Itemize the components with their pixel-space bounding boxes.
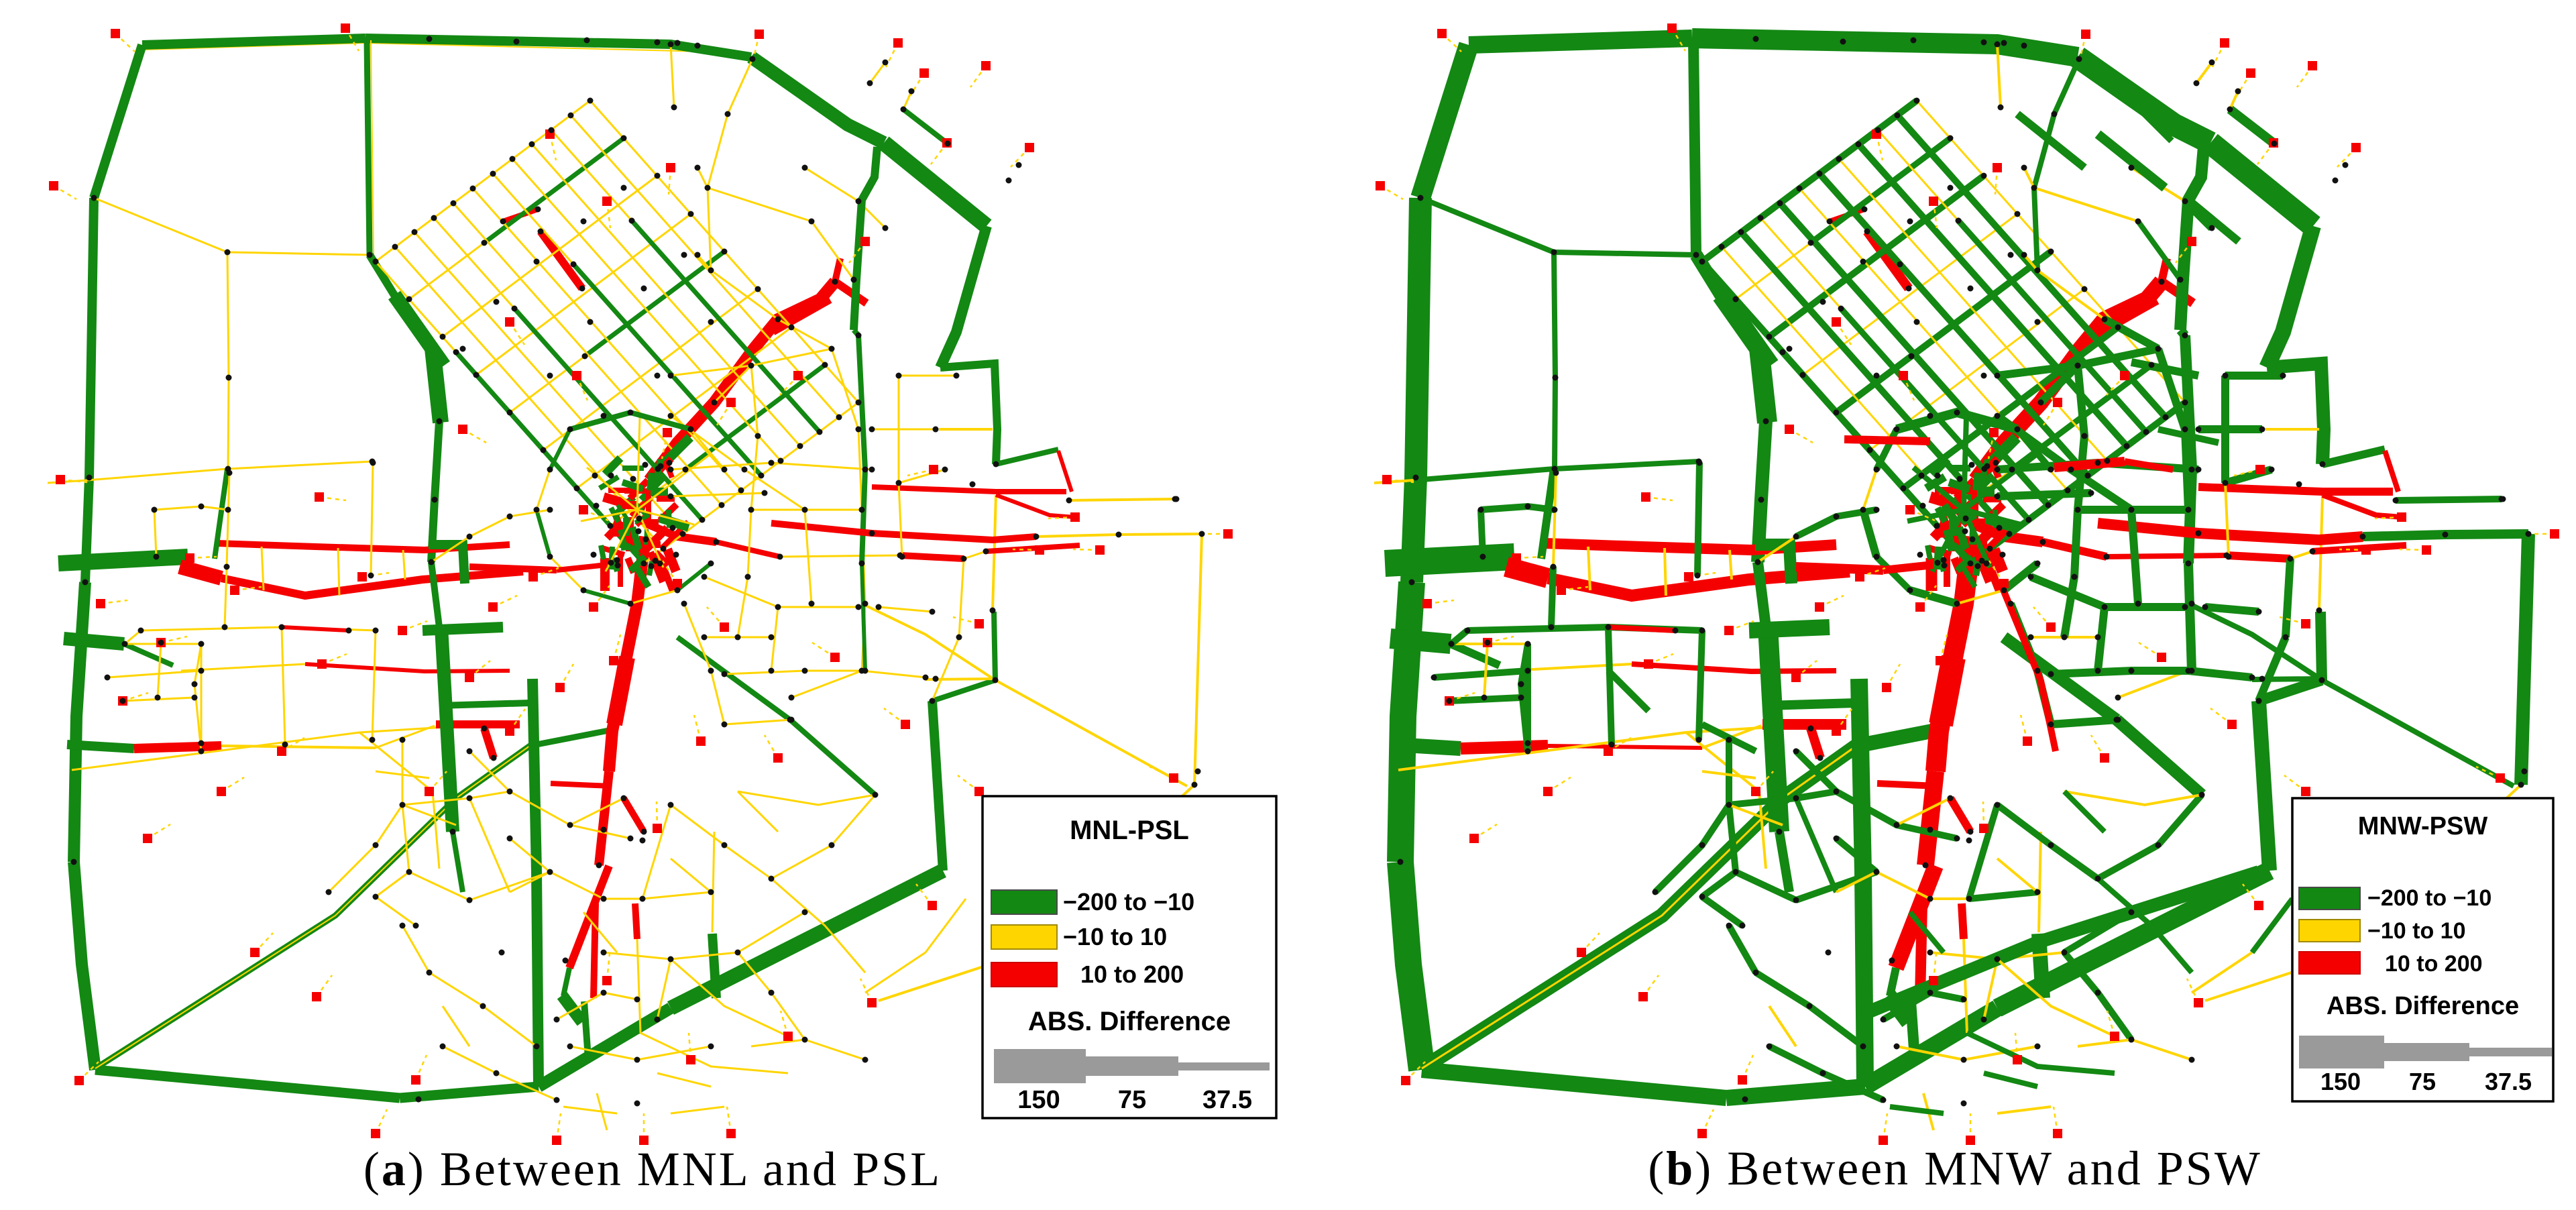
svg-text:10 to 200: 10 to 200 bbox=[1080, 960, 1184, 988]
svg-text:150: 150 bbox=[2320, 1068, 2361, 1095]
svg-text:37.5: 37.5 bbox=[1202, 1086, 1252, 1114]
svg-text:MNW-PSW: MNW-PSW bbox=[2358, 812, 2488, 840]
svg-text:−200 to −10: −200 to −10 bbox=[2367, 885, 2491, 911]
svg-text:75: 75 bbox=[2409, 1068, 2436, 1095]
svg-text:−10 to 10: −10 to 10 bbox=[1063, 923, 1167, 950]
svg-text:150: 150 bbox=[1017, 1086, 1060, 1114]
svg-text:75: 75 bbox=[1118, 1086, 1146, 1114]
svg-text:(b) Between MNW and PSW: (b) Between MNW and PSW bbox=[1648, 1142, 2262, 1195]
svg-text:37.5: 37.5 bbox=[2485, 1068, 2532, 1095]
svg-text:MNL-PSL: MNL-PSL bbox=[1070, 816, 1189, 845]
svg-text:−10 to 10: −10 to 10 bbox=[2367, 918, 2465, 944]
svg-text:(a) Between MNL and PSL: (a) Between MNL and PSL bbox=[363, 1142, 942, 1196]
svg-text:ABS. Difference: ABS. Difference bbox=[2327, 992, 2519, 1020]
svg-text:ABS. Difference: ABS. Difference bbox=[1028, 1007, 1231, 1036]
svg-text:−200 to −10: −200 to −10 bbox=[1063, 888, 1194, 916]
svg-text:10 to 200: 10 to 200 bbox=[2385, 951, 2483, 977]
